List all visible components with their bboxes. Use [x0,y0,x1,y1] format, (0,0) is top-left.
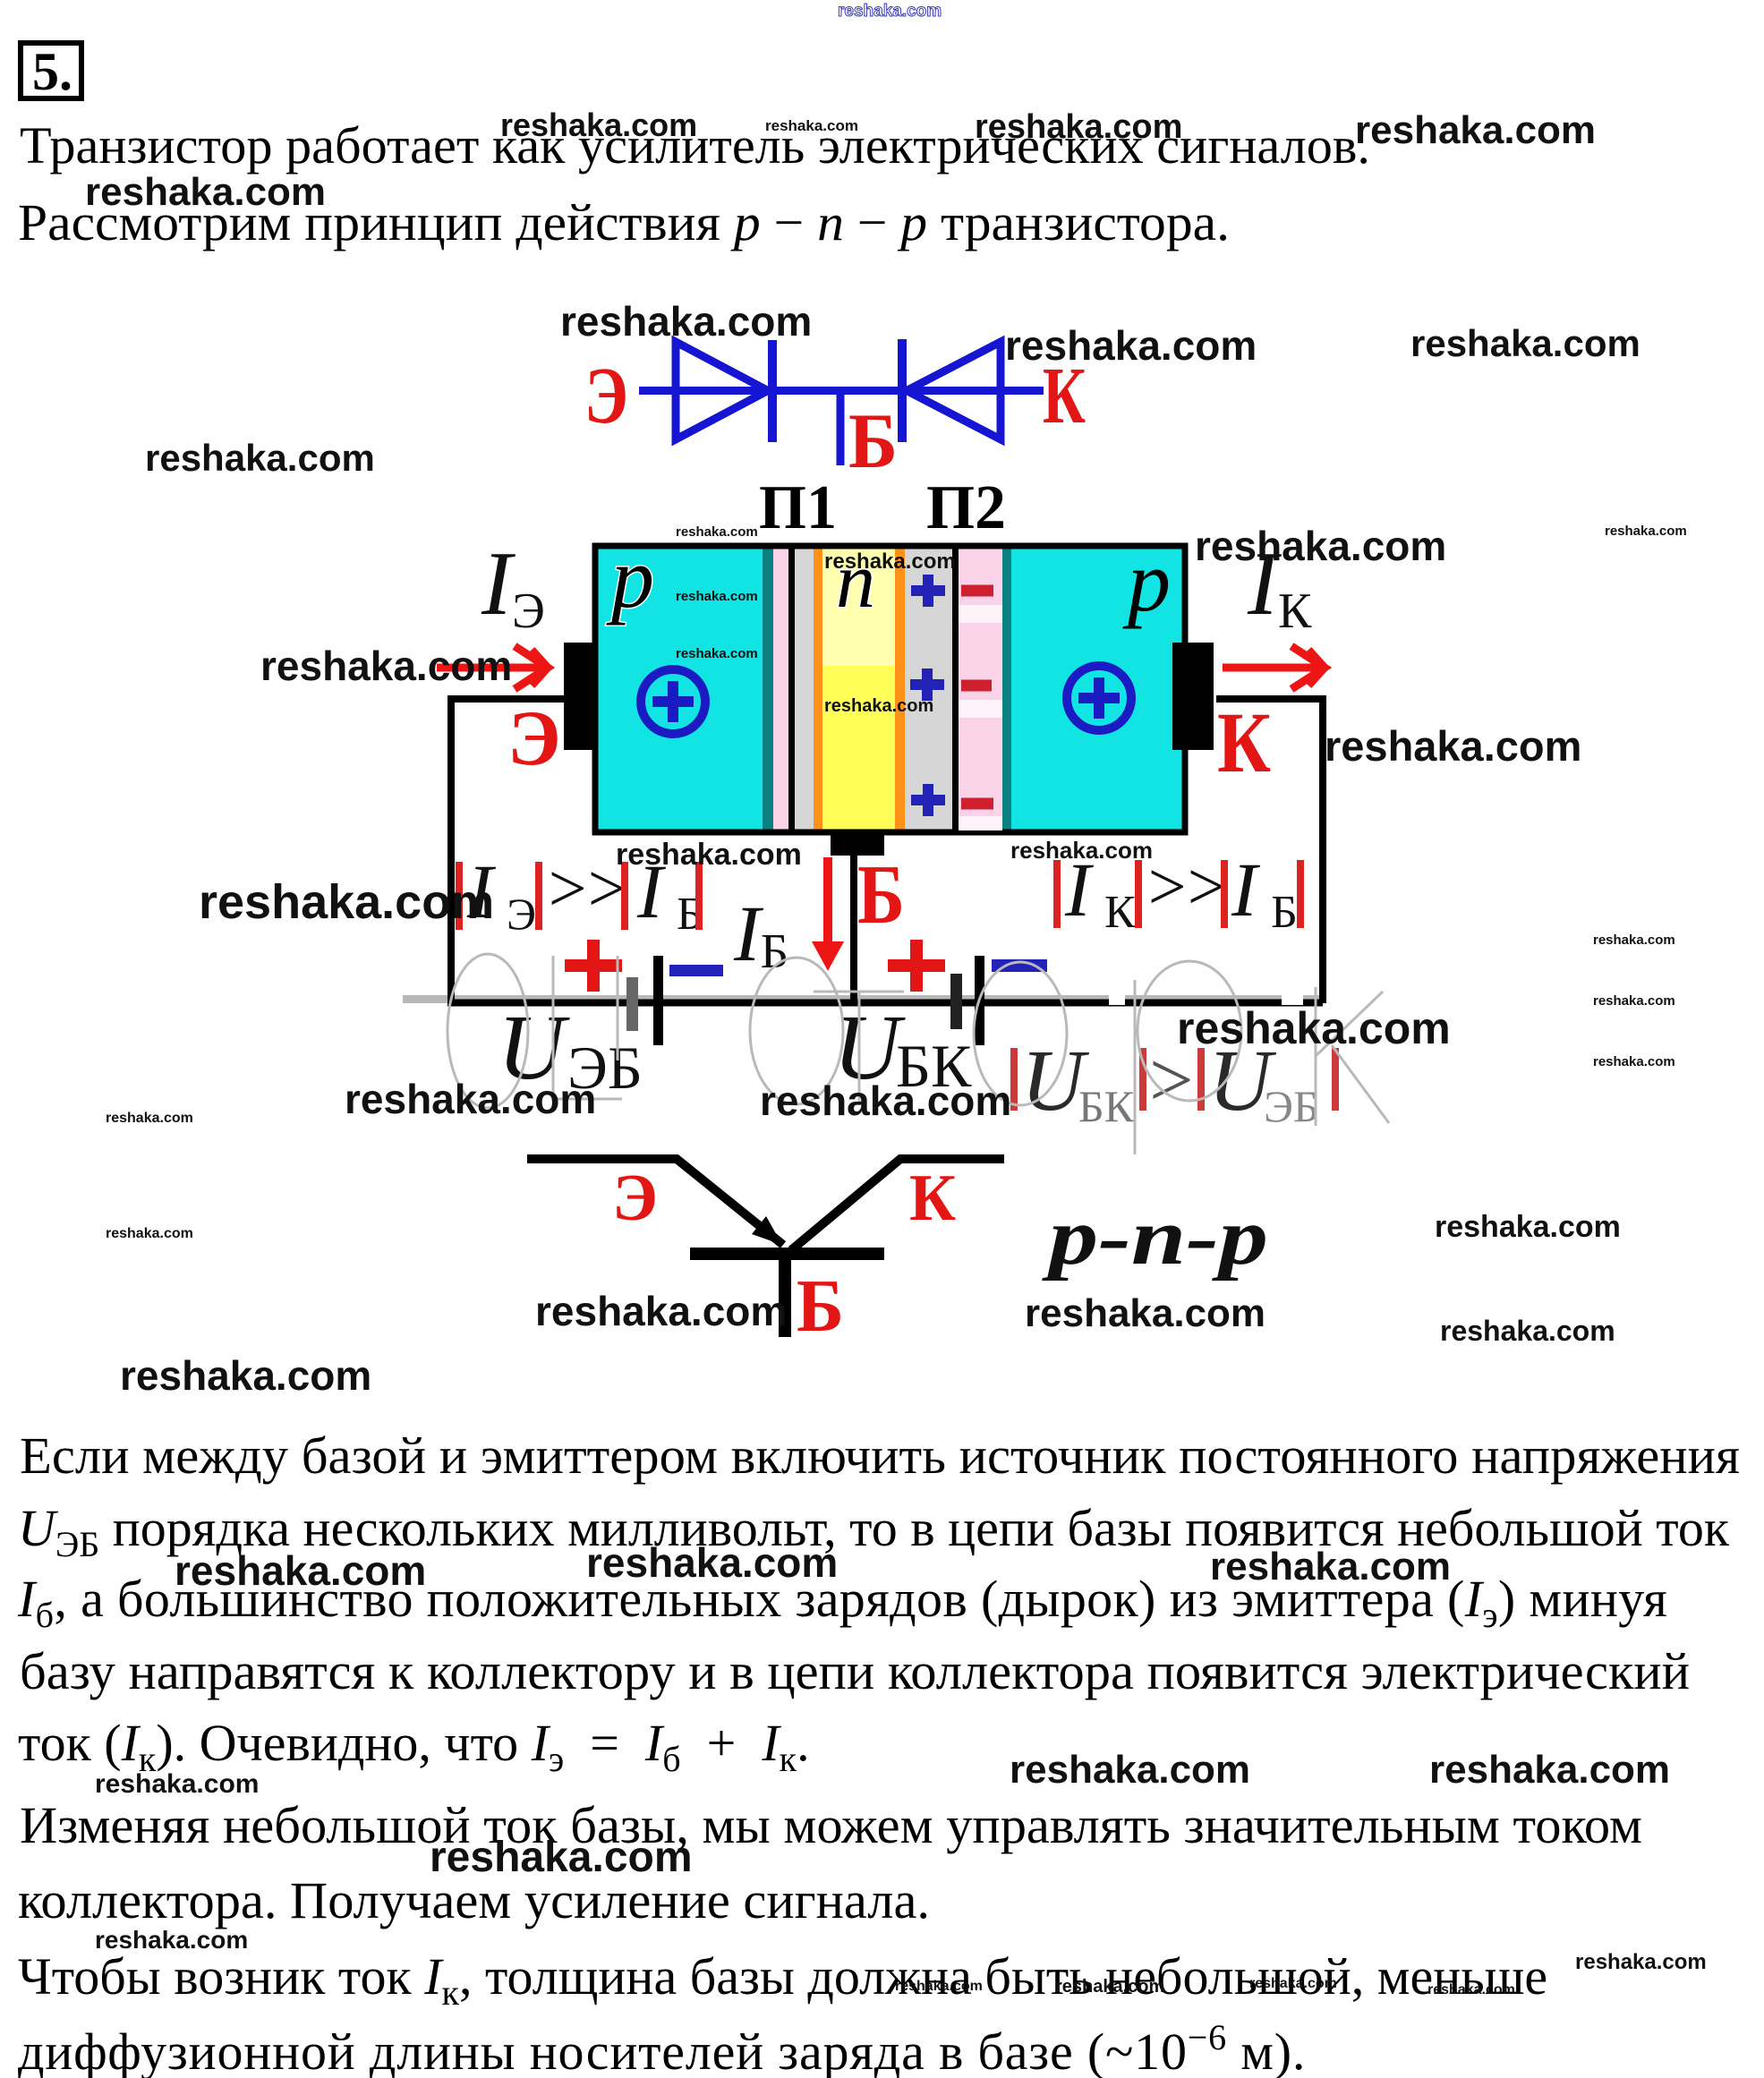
svg-text:reshaka.com: reshaka.com [838,2,942,21]
svg-text:Э: Э [612,1162,658,1235]
svg-text:reshaka.com: reshaka.com [676,524,758,540]
svg-text:reshaka.com: reshaka.com [895,1979,983,1994]
svg-text:reshaka.com: reshaka.com [85,170,326,214]
svg-text:П2: П2 [926,473,1006,542]
svg-text:reshaka.com: reshaka.com [1440,1315,1615,1347]
svg-text:reshaka.com: reshaka.com [430,1834,693,1881]
svg-text:Э: Э [507,889,536,939]
svg-text:Б: Б [848,398,898,485]
svg-text:К: К [909,1162,956,1235]
svg-text:reshaka.com: reshaka.com [1593,1054,1675,1069]
svg-text:reshaka.com: reshaka.com [1177,1003,1451,1053]
svg-text:reshaka.com: reshaka.com [560,298,812,345]
svg-text:reshaka.com: reshaka.com [616,838,802,872]
svg-text:reshaka.com: reshaka.com [824,549,956,574]
svg-text:reshaka.com: reshaka.com [145,437,375,479]
svg-text:reshaka.com: reshaka.com [1410,322,1640,364]
svg-text:К: К [1217,694,1271,790]
svg-text:Если между базой и эмиттером в: Если между базой и эмиттером включить ис… [20,1426,1740,1485]
svg-text:reshaka.com: reshaka.com [975,108,1182,146]
svg-text:reshaka.com: reshaka.com [95,1769,259,1799]
svg-text:reshaka.com: reshaka.com [120,1352,371,1399]
svg-text:reshaka.com: reshaka.com [1355,108,1596,152]
svg-text:reshaka.com: reshaka.com [676,589,758,604]
svg-text:reshaka.com: reshaka.com [535,1288,787,1334]
svg-text:reshaka.com: reshaka.com [760,1077,1011,1124]
svg-text:reshaka.com: reshaka.com [824,696,933,716]
svg-text:reshaka.com: reshaka.com [1195,523,1446,569]
svg-text:reshaka.com: reshaka.com [1325,722,1581,770]
svg-text:диффузионной длины носителей з: диффузионной длины носителей заряда в ба… [18,2017,1306,2078]
svg-text:reshaka.com: reshaka.com [260,643,512,689]
svg-text:reshaka.com: reshaka.com [1593,933,1675,948]
svg-text:p: p [606,530,654,626]
svg-text:reshaka.com: reshaka.com [1025,1291,1265,1335]
svg-text:reshaka.com: reshaka.com [1593,993,1675,1009]
svg-text:reshaka.com: reshaka.com [586,1539,838,1586]
svg-text:Э: Э [584,352,628,440]
svg-text:reshaka.com: reshaka.com [1427,1982,1515,1997]
svg-text:reshaka.com: reshaka.com [1435,1210,1621,1244]
svg-text:Б: Б [1271,887,1298,938]
svg-text:I: I [1231,847,1260,933]
svg-text:Б: Б [797,1265,844,1348]
svg-text:reshaka.com: reshaka.com [106,1226,193,1241]
svg-text:p-n-p: p-n-p [1041,1193,1268,1282]
svg-text:базу направятся к коллектору и: базу направятся к коллектору и в цепи ко… [20,1642,1690,1700]
svg-text:5.: 5. [32,42,72,101]
svg-text:reshaka.com: reshaka.com [1010,837,1153,864]
svg-text:reshaka.com: reshaka.com [95,1926,248,1954]
svg-text:reshaka.com: reshaka.com [1055,1977,1164,1997]
svg-text:reshaka.com: reshaka.com [1605,524,1687,539]
svg-text:reshaka.com: reshaka.com [1210,1545,1451,1588]
svg-text:К: К [1104,887,1136,938]
svg-text:Изменяя небольшой ток базы, мы: Изменяя небольшой ток базы, мы можем упр… [20,1796,1642,1854]
svg-text:reshaka.com: reshaka.com [175,1547,426,1594]
svg-text:reshaka.com: reshaka.com [765,117,858,134]
svg-text:Б: Б [857,848,905,941]
svg-text:reshaka.com: reshaka.com [345,1076,596,1122]
svg-text:П1: П1 [759,473,837,542]
svg-text:reshaka.com: reshaka.com [1249,1976,1337,1991]
svg-text:ЭБ: ЭБ [1264,1081,1319,1131]
svg-text:БК: БК [1078,1081,1135,1131]
svg-text:reshaka.com: reshaka.com [106,1111,193,1126]
svg-text:reshaka.com: reshaka.com [500,106,697,143]
svg-text:p: p [1122,533,1171,629]
svg-text:reshaka.com: reshaka.com [1429,1748,1670,1792]
svg-text:reshaka.com: reshaka.com [676,646,758,661]
svg-text:reshaka.com: reshaka.com [1010,1748,1250,1792]
svg-text:Э: Э [507,695,561,782]
svg-text:reshaka.com: reshaka.com [1005,322,1257,369]
svg-text:reshaka.com: reshaka.com [1575,1950,1707,1974]
svg-text:reshaka.com: reshaka.com [199,875,494,929]
